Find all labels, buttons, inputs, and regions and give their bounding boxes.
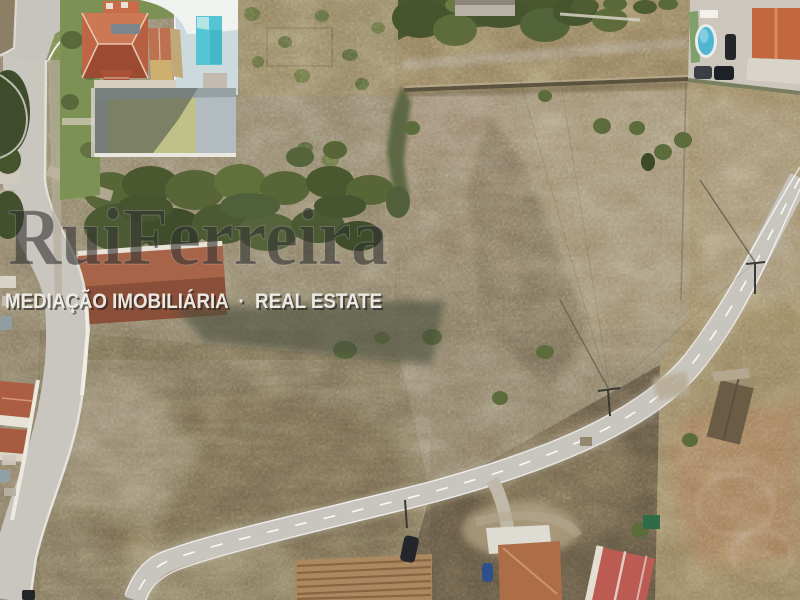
svg-text:MEDIAÇÃO IMOBILIÁRIA · REAL: MEDIAÇÃO IMOBILIÁRIA · REAL ESTATE (5, 290, 382, 313)
svg-text:RuiFerreira: RuiFerreira (8, 191, 388, 282)
